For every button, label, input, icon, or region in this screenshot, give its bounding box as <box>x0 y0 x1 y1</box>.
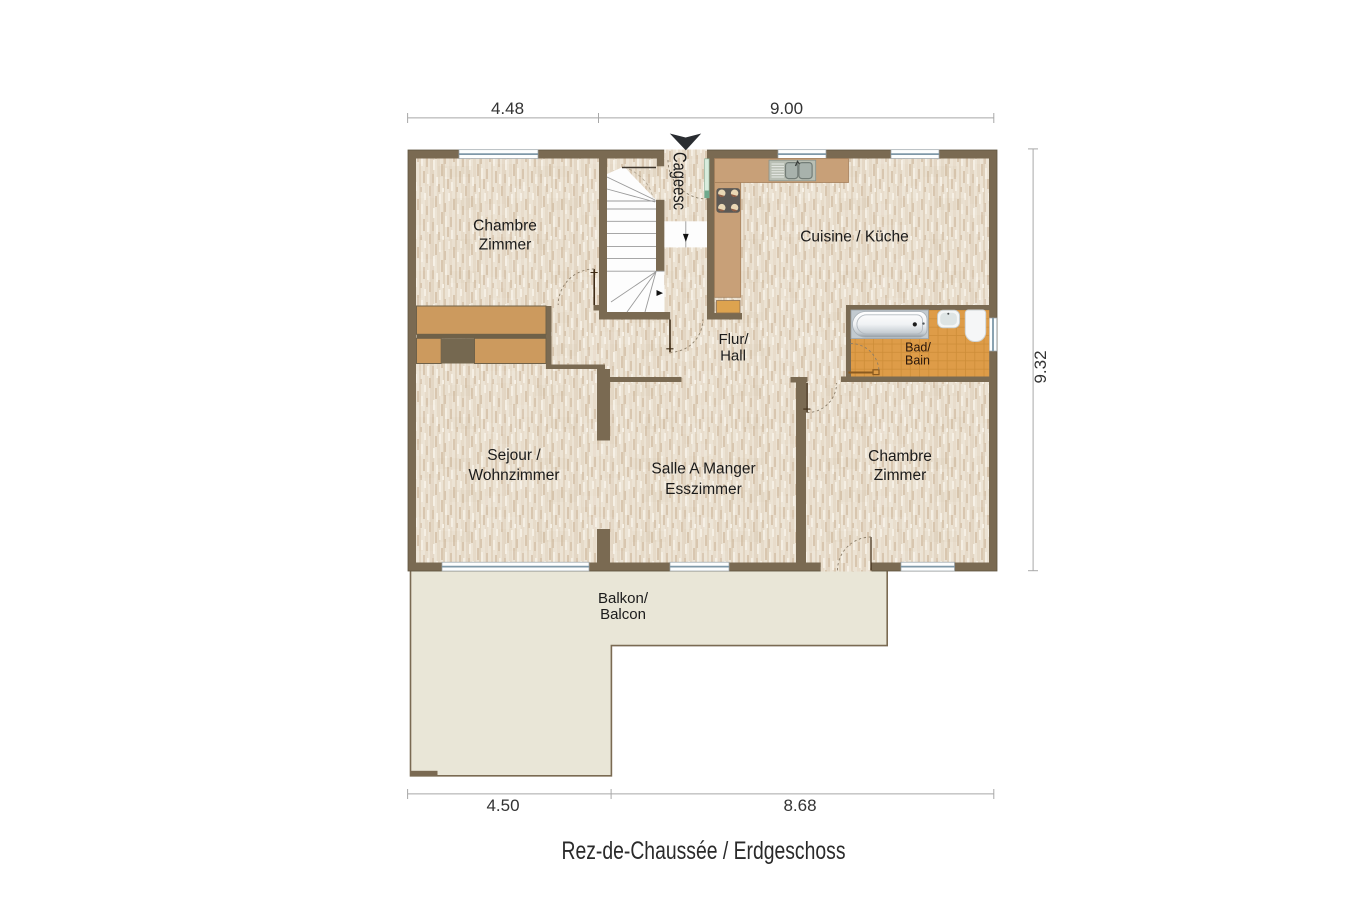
svg-text:Bad/: Bad/ <box>905 341 931 355</box>
svg-text:Chambre: Chambre <box>473 218 537 235</box>
svg-text:Zimmer: Zimmer <box>874 467 927 484</box>
svg-text:Bain: Bain <box>905 354 930 368</box>
svg-text:Flur/: Flur/ <box>719 331 750 348</box>
svg-text:Balcon: Balcon <box>600 606 646 623</box>
svg-text:Hall: Hall <box>720 348 746 365</box>
svg-text:8.68: 8.68 <box>783 796 816 815</box>
svg-text:Esszimmer: Esszimmer <box>665 481 742 498</box>
svg-text:Chambre: Chambre <box>868 448 932 465</box>
svg-text:Wohnzimmer: Wohnzimmer <box>468 467 559 484</box>
svg-text:9.32: 9.32 <box>1031 350 1050 383</box>
svg-text:4.50: 4.50 <box>486 796 519 815</box>
svg-text:Rez-de-Chaussée / Erdgeschoss: Rez-de-Chaussée / Erdgeschoss <box>562 837 846 865</box>
svg-text:9.00: 9.00 <box>770 99 803 118</box>
svg-text:Sejour /: Sejour / <box>487 447 541 464</box>
svg-text:4.48: 4.48 <box>491 99 524 118</box>
svg-text:Salle A Manger: Salle A Manger <box>651 461 755 478</box>
svg-text:Cuisine / Küche: Cuisine / Küche <box>800 229 909 246</box>
svg-text:Zimmer: Zimmer <box>479 236 532 253</box>
svg-text:Cageesc: Cageesc <box>670 152 690 210</box>
svg-text:Balkon/: Balkon/ <box>598 590 649 607</box>
